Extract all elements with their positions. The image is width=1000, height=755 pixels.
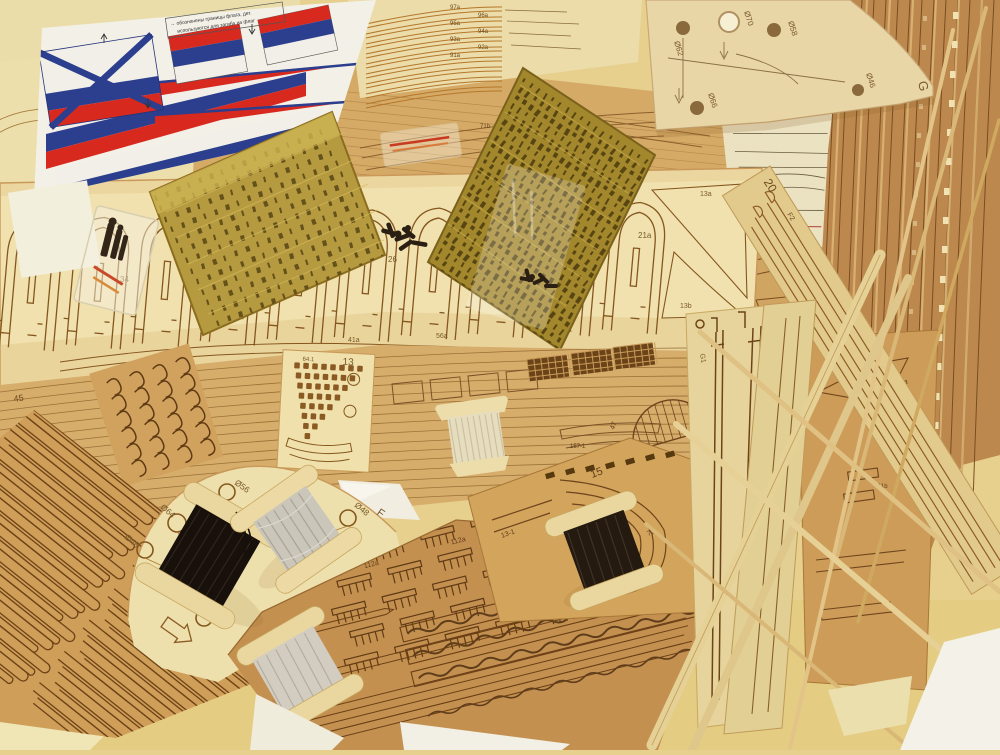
svg-text:13: 13 xyxy=(342,357,354,369)
svg-text:92a: 92a xyxy=(478,45,489,51)
svg-text:13a: 13a xyxy=(700,191,712,198)
svg-text:71b: 71b xyxy=(480,124,491,130)
svg-text:26: 26 xyxy=(388,255,397,264)
svg-text:64.1: 64.1 xyxy=(302,357,315,364)
svg-text:97a: 97a xyxy=(450,5,461,11)
svg-text:95a: 95a xyxy=(450,21,461,27)
svg-text:13b: 13b xyxy=(680,303,692,310)
svg-text:157-1: 157-1 xyxy=(570,444,586,450)
svg-text:94a: 94a xyxy=(478,29,489,35)
svg-text:45: 45 xyxy=(13,393,24,404)
svg-text:41a: 41a xyxy=(348,337,360,344)
svg-text:56a: 56a xyxy=(436,333,448,340)
svg-text:91a: 91a xyxy=(450,53,461,59)
svg-text:93a: 93a xyxy=(450,37,461,43)
svg-text:21a: 21a xyxy=(638,231,652,240)
svg-text:96a: 96a xyxy=(478,13,489,19)
